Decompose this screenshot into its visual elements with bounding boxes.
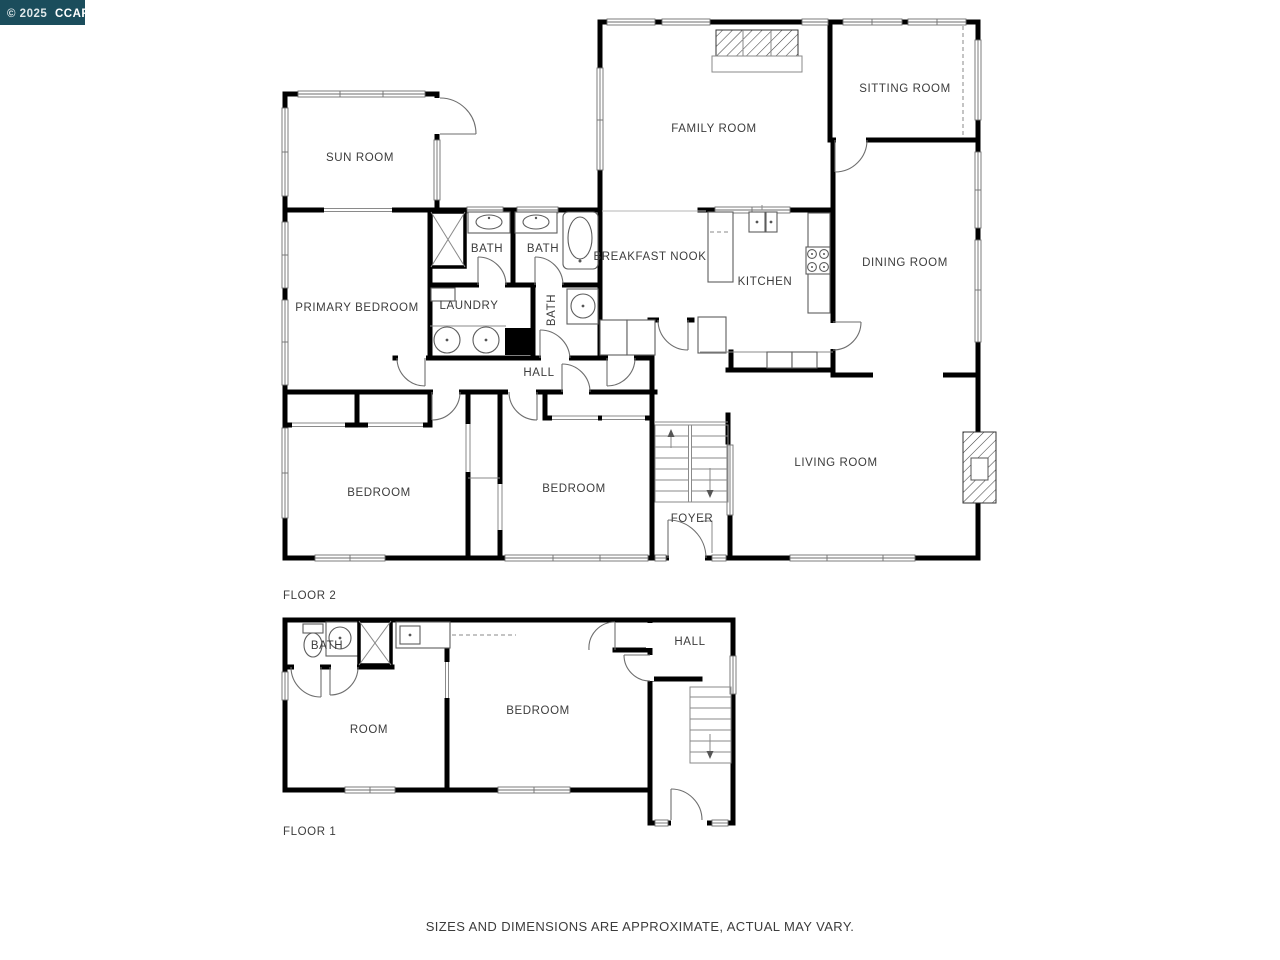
door-f1-entry (671, 789, 702, 820)
floor2-windows (282, 19, 981, 561)
door-bath-1 (478, 257, 506, 285)
room-label-hall: HALL (523, 367, 554, 379)
laundry-sinks (430, 288, 506, 353)
room-label-family-room: FAMILY ROOM (671, 123, 756, 135)
shower (431, 212, 465, 267)
door-breakfast-nook (658, 320, 688, 350)
room-label-bedroom-1: BEDROOM (347, 487, 411, 499)
door-sun-room (440, 98, 476, 134)
svg-text:© 2025 CCAR: © 2025 CCAR (7, 8, 90, 20)
bath3-sink (567, 289, 598, 324)
room-label-bath-1: BATH (471, 243, 503, 255)
floor2-labels: SUN ROOM FAMILY ROOM SITTING ROOM BATH B… (295, 83, 951, 525)
room-label-dining-room: DINING ROOM (862, 257, 948, 269)
room-label-breakfast-nook: BREAKFAST NOOK (594, 251, 707, 263)
room-label-living-room: LIVING ROOM (794, 457, 877, 469)
door-bedroom-2 (509, 392, 537, 420)
shower-f1 (359, 621, 391, 665)
floor2-plan: SUN ROOM FAMILY ROOM SITTING ROOM BATH B… (282, 19, 996, 602)
room-label-sun-room: SUN ROOM (326, 152, 394, 164)
room-label-kitchen: KITCHEN (738, 276, 793, 288)
room-label-primary-bedroom: PRIMARY BEDROOM (295, 302, 419, 314)
door-hall-a (562, 364, 590, 392)
door-sitting-room (835, 140, 867, 172)
door-f1-room-b (330, 667, 358, 695)
room-label-bath-2: BATH (527, 243, 559, 255)
foyer-leader-line (701, 521, 712, 553)
fireplace-family-room (712, 30, 802, 72)
floor1-plan: BATH HALL ROOM BEDROOM FLOOR 1 (282, 620, 736, 838)
door-foyer-entry (668, 520, 706, 558)
door-bedroom-1 (432, 392, 460, 420)
chimney (505, 328, 533, 355)
door-primary-bedroom (397, 358, 425, 386)
room-label-f1-hall: HALL (674, 636, 705, 648)
watermark-badge: © 2025 CCAR (0, 0, 90, 25)
floor2-walls (285, 22, 978, 558)
bath2-vanity (515, 212, 557, 233)
floor1-fixtures (303, 621, 731, 763)
room-label-f1-bedroom: BEDROOM (506, 705, 570, 717)
watermark-name: CCAR (55, 8, 90, 20)
room-label-sitting-room: SITTING ROOM (859, 83, 951, 95)
stove (806, 247, 830, 274)
door-f1-room-a (291, 667, 321, 697)
floorplan-page: SUN ROOM FAMILY ROOM SITTING ROOM BATH B… (0, 0, 1280, 960)
floor2-title: FLOOR 2 (283, 590, 336, 602)
door-hall-b (607, 358, 635, 386)
stairs-floor2 (655, 422, 728, 502)
watermark-prefix: © 2025 (7, 8, 47, 20)
door-bath-2 (535, 257, 563, 285)
room-label-f1-room: ROOM (350, 724, 388, 736)
door-bath-3 (540, 330, 570, 358)
room-label-f1-bath: BATH (311, 640, 343, 652)
door-f1-bedroom (589, 622, 615, 650)
room-label-laundry: LAUNDRY (440, 300, 499, 312)
vanity-f1 (396, 622, 516, 648)
kitchen-counter (698, 212, 833, 368)
floor1-title: FLOOR 1 (283, 826, 336, 838)
room-label-foyer: FOYER (671, 513, 714, 525)
floorplan-image: SUN ROOM FAMILY ROOM SITTING ROOM BATH B… (0, 0, 1280, 960)
floor2-fixtures (430, 30, 996, 553)
disclaimer-text: SIZES AND DIMENSIONS ARE APPROXIMATE, AC… (426, 919, 855, 934)
bath1-vanity (468, 212, 510, 233)
room-label-bath-3: BATH (546, 294, 558, 326)
fireplace-living-room (963, 432, 996, 503)
room-label-bedroom-2: BEDROOM (542, 483, 606, 495)
stairs-floor1 (690, 687, 731, 763)
hall-closets (600, 320, 655, 355)
door-dining-room (833, 322, 861, 350)
